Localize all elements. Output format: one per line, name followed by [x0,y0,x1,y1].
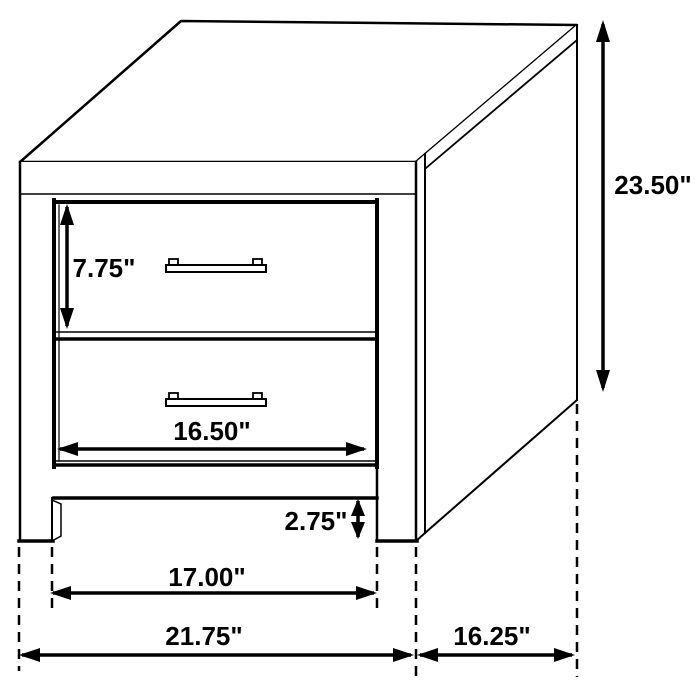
arrow-left-icon [417,648,438,662]
dimension-diagram-canvas: 23.50" 7.75" 16.50" 2.75" 17 [0,0,700,700]
nightstand-front-frame [20,162,416,541]
arrow-right-icon [393,648,414,662]
nightstand-dimension-diagram: 23.50" 7.75" 16.50" 2.75" 17 [0,0,700,700]
arrow-left-icon [19,648,40,662]
dimension-label-overall-depth: 16.25" [453,621,530,651]
dimension-label-inner-leg-span: 17.00" [168,562,245,592]
dimension-label-drawer-height: 7.75" [73,253,136,283]
dimension-overall-depth: 16.25" [417,621,575,662]
arrow-down-icon [596,370,610,392]
dimension-label-overall-height: 23.50" [614,170,691,200]
dimension-label-drawer-width: 16.50" [173,416,250,446]
dimension-label-overall-width: 21.75" [165,621,242,651]
dimension-overall-width: 21.75" [19,621,414,662]
arrow-right-icon [554,648,575,662]
dimension-overall-height: 23.50" [596,20,692,392]
dimension-inner-leg-span: 17.00" [50,562,377,600]
dimension-label-base-clearance: 2.75" [285,506,348,536]
arrow-right-icon [356,586,377,600]
arrow-up-icon [596,20,610,42]
